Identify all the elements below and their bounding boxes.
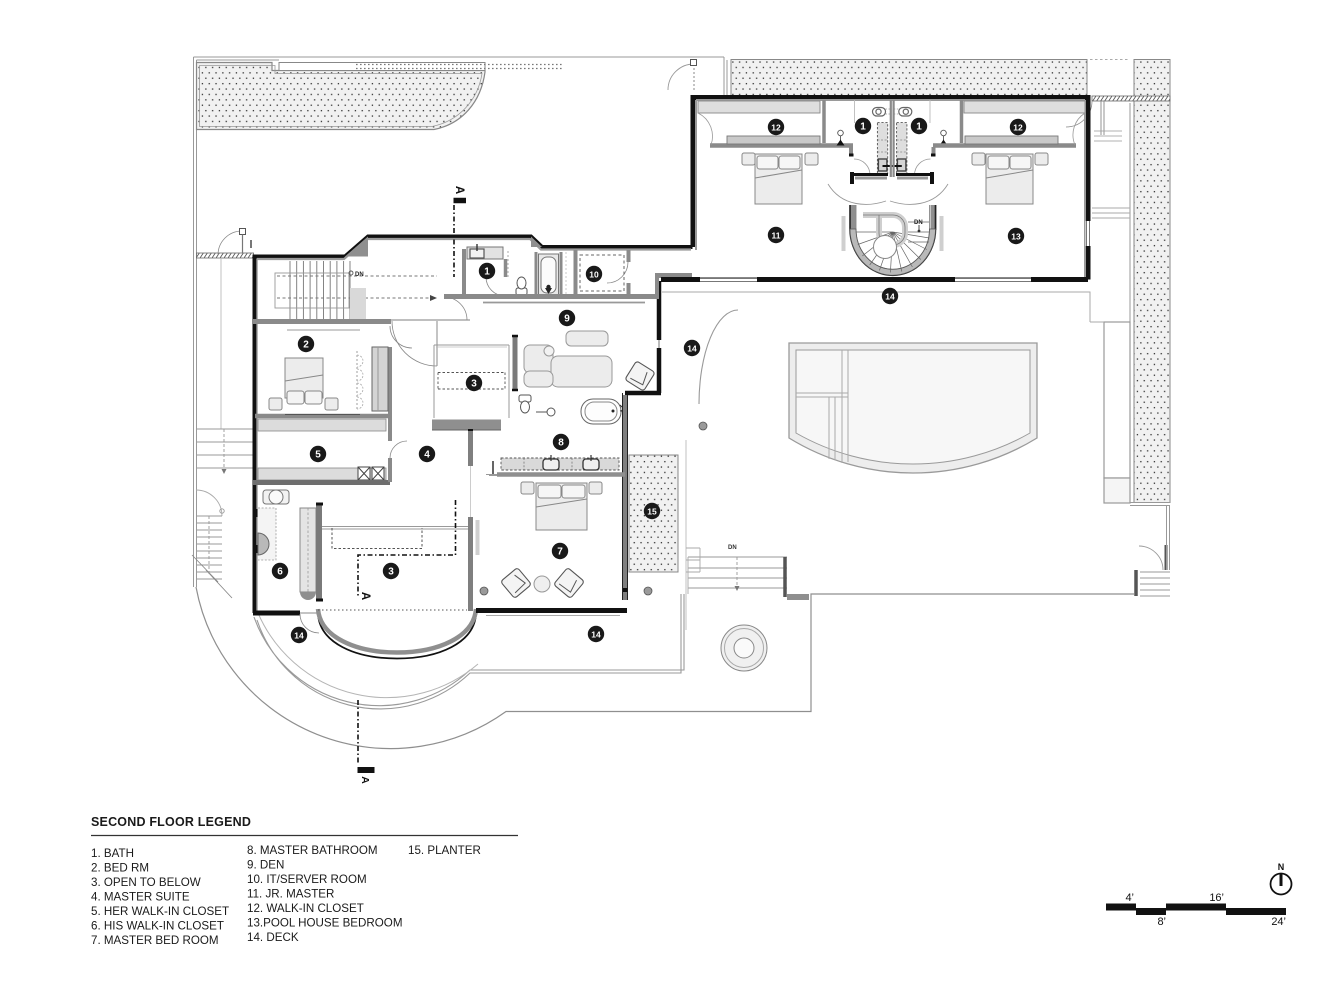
svg-text:9. DEN: 9. DEN bbox=[247, 859, 284, 872]
svg-text:11: 11 bbox=[772, 230, 781, 240]
svg-text:13: 13 bbox=[1011, 231, 1021, 241]
svg-text:4. MASTER SUITE: 4. MASTER SUITE bbox=[91, 891, 190, 904]
svg-text:12: 12 bbox=[1013, 122, 1023, 132]
svg-text:14: 14 bbox=[591, 629, 601, 639]
svg-text:N: N bbox=[1278, 862, 1285, 872]
svg-text:15. PLANTER: 15. PLANTER bbox=[408, 844, 481, 857]
svg-text:5: 5 bbox=[315, 449, 321, 460]
svg-text:SECOND FLOOR LEGEND: SECOND FLOOR LEGEND bbox=[91, 815, 251, 829]
svg-text:5. HER WALK-IN CLOSET: 5. HER WALK-IN CLOSET bbox=[91, 905, 229, 918]
svg-text:6. HIS WALK-IN CLOSET: 6. HIS WALK-IN CLOSET bbox=[91, 920, 224, 933]
svg-text:8. MASTER BATHROOM: 8. MASTER BATHROOM bbox=[247, 844, 378, 857]
svg-text:DN: DN bbox=[728, 545, 737, 551]
svg-text:15: 15 bbox=[647, 506, 657, 516]
svg-text:1: 1 bbox=[484, 266, 490, 277]
svg-text:A: A bbox=[359, 776, 371, 784]
svg-text:3: 3 bbox=[471, 378, 477, 389]
svg-text:24’: 24’ bbox=[1271, 916, 1286, 928]
svg-text:A: A bbox=[453, 186, 465, 194]
svg-text:4: 4 bbox=[424, 449, 430, 460]
svg-text:13.POOL HOUSE BEDROOM: 13.POOL HOUSE BEDROOM bbox=[247, 917, 402, 930]
svg-text:8’: 8’ bbox=[1157, 916, 1166, 928]
svg-text:4’: 4’ bbox=[1125, 892, 1134, 904]
svg-text:1: 1 bbox=[916, 121, 922, 132]
svg-text:16’: 16’ bbox=[1209, 892, 1224, 904]
svg-text:8: 8 bbox=[558, 437, 564, 448]
svg-text:14: 14 bbox=[294, 630, 304, 640]
svg-text:1: 1 bbox=[860, 121, 866, 132]
svg-text:12. WALK-IN CLOSET: 12. WALK-IN CLOSET bbox=[247, 902, 364, 915]
svg-text:10. IT/SERVER ROOM: 10. IT/SERVER ROOM bbox=[247, 873, 367, 886]
svg-text:DN: DN bbox=[355, 272, 364, 278]
svg-text:7. MASTER BED ROOM: 7. MASTER BED ROOM bbox=[91, 934, 219, 947]
svg-text:6: 6 bbox=[277, 566, 283, 577]
svg-text:3: 3 bbox=[388, 566, 394, 577]
svg-text:2. BED RM: 2. BED RM bbox=[91, 862, 149, 875]
svg-text:1. BATH: 1. BATH bbox=[91, 847, 134, 860]
svg-text:10: 10 bbox=[589, 269, 599, 279]
svg-text:14: 14 bbox=[885, 291, 895, 301]
svg-text:7: 7 bbox=[557, 546, 563, 557]
svg-text:2: 2 bbox=[303, 339, 309, 350]
svg-text:14: 14 bbox=[687, 343, 697, 353]
svg-text:DN: DN bbox=[914, 220, 923, 226]
svg-text:A: A bbox=[359, 592, 371, 600]
svg-text:14. DECK: 14. DECK bbox=[247, 931, 299, 944]
svg-text:9: 9 bbox=[564, 313, 570, 324]
svg-text:11. JR. MASTER: 11. JR. MASTER bbox=[247, 888, 334, 901]
svg-text:12: 12 bbox=[771, 122, 781, 132]
svg-text:3. OPEN TO BELOW: 3. OPEN TO BELOW bbox=[91, 876, 201, 889]
